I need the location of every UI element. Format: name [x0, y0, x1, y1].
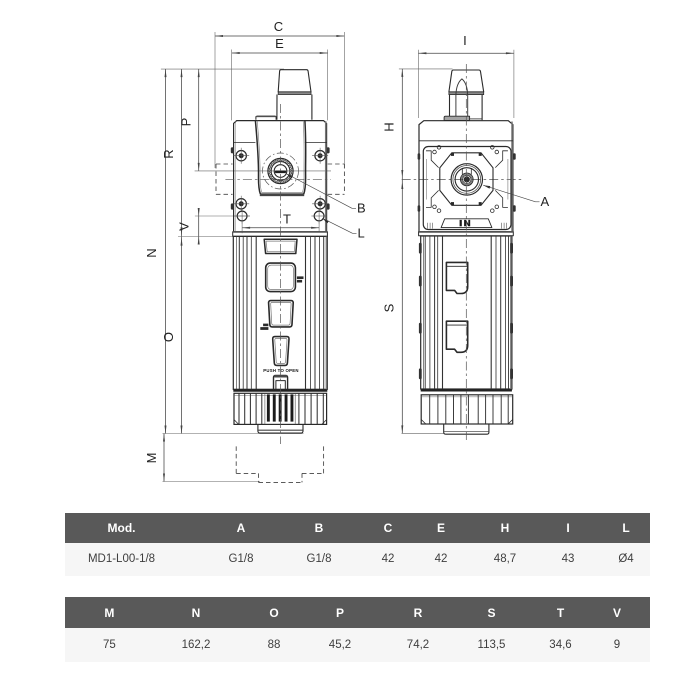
svg-text:PUSH TO OPEN: PUSH TO OPEN [263, 368, 298, 373]
svg-text:H: H [382, 122, 397, 131]
svg-text:A: A [541, 194, 550, 209]
svg-text:P: P [179, 118, 194, 127]
svg-text:R: R [161, 149, 176, 158]
svg-text:L: L [358, 226, 365, 241]
svg-text:O: O [161, 332, 176, 342]
svg-text:I: I [463, 33, 467, 48]
svg-text:V: V [177, 222, 192, 231]
svg-text:E: E [275, 36, 284, 51]
svg-text:N: N [144, 248, 159, 257]
svg-text:T: T [283, 212, 291, 227]
svg-text:S: S [382, 303, 397, 312]
svg-text:C: C [274, 19, 283, 34]
svg-text:M: M [144, 453, 159, 464]
svg-text:B: B [357, 201, 366, 216]
